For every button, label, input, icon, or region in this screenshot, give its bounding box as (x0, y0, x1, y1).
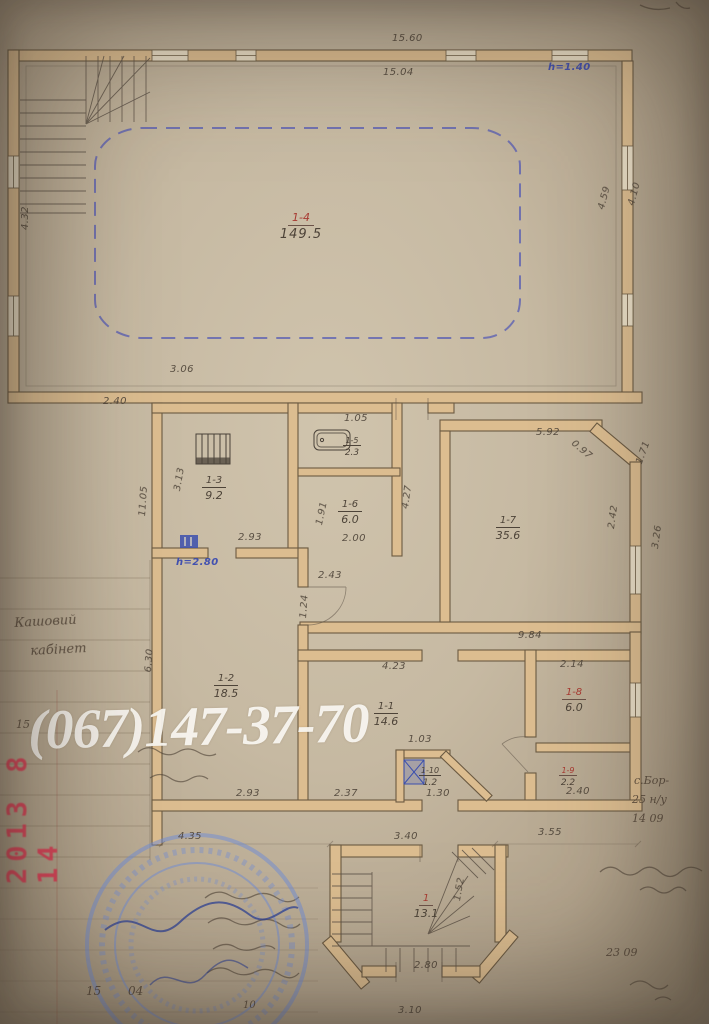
handwritten-note: Кашовий (14, 613, 77, 631)
room-area: 6.0 (546, 701, 602, 714)
dimension-label: 11.05 (137, 485, 150, 516)
room-area: 2.3 (332, 448, 372, 458)
dimension-label: 1.30 (426, 788, 450, 799)
dimension-label: 3.10 (398, 1005, 422, 1016)
dimension-label: 2.00 (342, 533, 366, 544)
room-area: 35.6 (480, 529, 536, 542)
dimension-label: 2.93 (236, 788, 260, 799)
room-number: 1-6 (338, 499, 362, 512)
room-area: 9.2 (186, 489, 242, 502)
room-label-1-9: 1-92.2 (548, 758, 588, 788)
dimension-label: 2.14 (560, 659, 584, 670)
handwritten-note: 23 09 (606, 946, 638, 959)
room-number: 1-4 (288, 211, 314, 226)
phone-watermark: (067)147-37-70 (27, 691, 369, 762)
handwritten-note: 14 09 (632, 812, 664, 825)
room-label-1-7: 1-735.6 (480, 508, 536, 542)
room-label-1-3: 1-39.2 (186, 468, 242, 502)
handwritten-note: 10 (243, 1000, 256, 1011)
dimension-label: 9.84 (518, 630, 542, 641)
dimension-label: 2.42 (606, 504, 620, 529)
dimension-label: 0.97 (569, 438, 594, 462)
dimension-label: 15.04 (383, 67, 414, 78)
dimension-label: 2.93 (238, 532, 262, 543)
handwritten-note: 15 (86, 984, 101, 998)
dimension-label: 4.35 (178, 831, 202, 842)
dimension-label: 4.27 (400, 484, 414, 509)
room-number: 1-7 (496, 515, 520, 528)
room-number: 1-10 (419, 766, 441, 776)
dimension-label: 1.52 (452, 876, 467, 901)
room-area: 149.5 (273, 227, 329, 242)
dimension-label: 1.24 (298, 594, 311, 619)
height-note: h=1.40 (548, 62, 591, 73)
handwritten-note: с.Бор- (634, 774, 669, 787)
room-area: 1.2 (410, 778, 450, 788)
room-number: 1-5 (343, 436, 360, 446)
room-label-1-10: 1-101.2 (410, 758, 450, 788)
dimension-label: 4.59 (596, 185, 613, 211)
room-area: 2.2 (548, 778, 588, 788)
room-number: 1-3 (202, 475, 226, 488)
plan-labels: 15.6015.044.324.594.103.062.401.053.1311… (0, 0, 709, 1024)
room-label-1: 113.1 (398, 886, 454, 920)
dimension-label: 15.60 (392, 33, 423, 44)
room-label-1-4: 1-4149.5 (273, 206, 329, 242)
dimension-label: 3.06 (170, 364, 194, 375)
height-note: h=2.80 (176, 557, 219, 568)
room-label-1-6: 1-66.0 (322, 492, 378, 526)
dimension-label: 1.71 (634, 440, 653, 466)
room-label-1-8: 1-86.0 (546, 680, 602, 714)
room-area: 13.1 (398, 907, 454, 920)
room-number: 1-9 (559, 766, 576, 776)
room-number: 1 (419, 893, 433, 906)
dimension-label: 4.23 (382, 661, 406, 672)
dimension-label: 1.05 (344, 413, 368, 424)
room-label-1-5: 1-52.3 (332, 428, 372, 458)
dimension-label: 2.43 (318, 570, 342, 581)
dimension-label: 4.32 (20, 206, 31, 230)
dimension-label: 1.03 (408, 734, 432, 745)
room-number: 1-1 (374, 701, 398, 714)
dimension-label: 2.37 (334, 788, 358, 799)
dimension-label: 3.55 (538, 827, 562, 838)
room-number: 1-8 (562, 687, 586, 700)
room-area: 6.0 (322, 513, 378, 526)
dimension-label: 6.30 (143, 648, 156, 673)
floor-plan-photo: 15.6015.044.324.594.103.062.401.053.1311… (0, 0, 709, 1024)
handwritten-note: 04 (128, 984, 143, 998)
dimension-label: 3.13 (172, 466, 187, 491)
dimension-label: 2.80 (414, 960, 438, 971)
handwritten-note: кабінет (30, 641, 87, 659)
dimension-label: 2.40 (103, 396, 127, 407)
dimension-label: 3.40 (394, 831, 418, 842)
room-number: 1-2 (214, 673, 238, 686)
dimension-label: 5.92 (536, 427, 560, 438)
dimension-label: 4.10 (626, 181, 643, 207)
dimension-label: 3.26 (650, 524, 664, 549)
handwritten-note: 25 н/у (632, 793, 667, 806)
